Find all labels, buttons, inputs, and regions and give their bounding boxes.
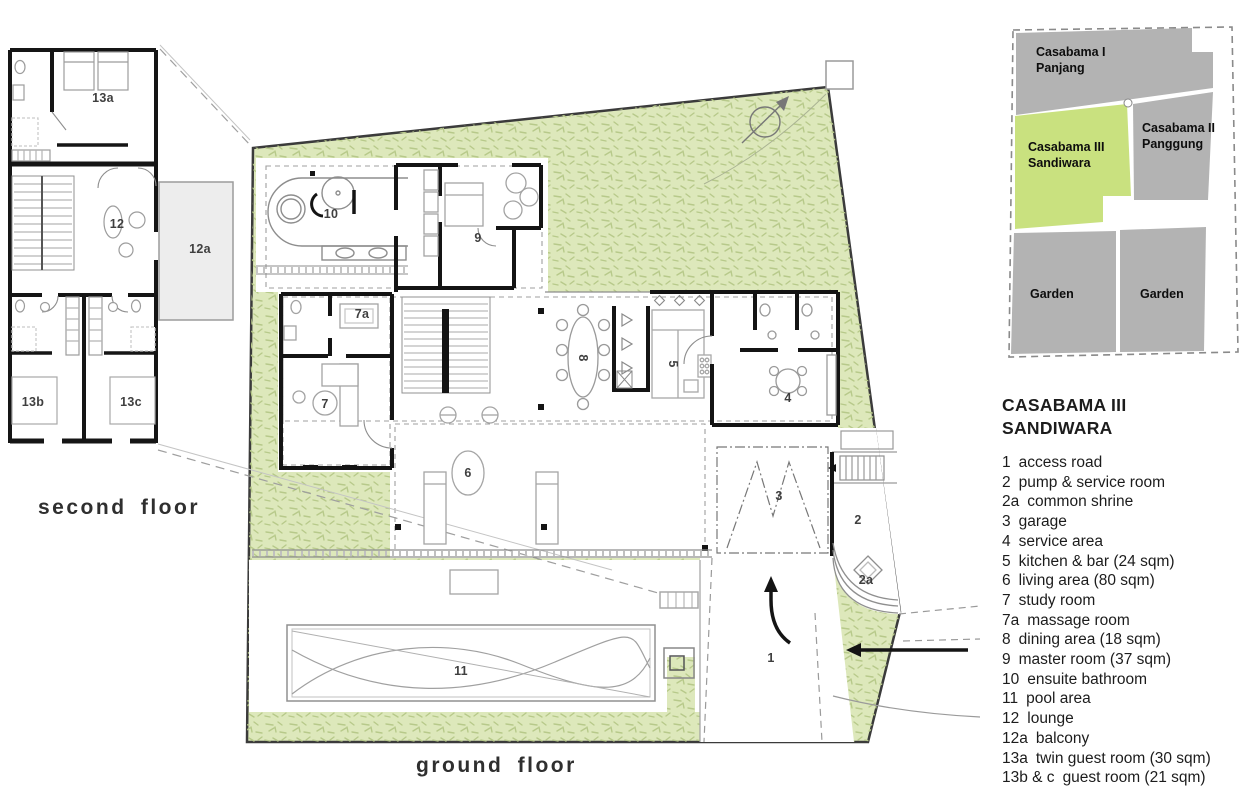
room-label-7: 7 [321, 397, 328, 411]
legend-item: 2pump & service room [1002, 473, 1250, 493]
legend-item: 11pool area [1002, 689, 1250, 709]
site-key-map [1009, 27, 1238, 357]
column [310, 171, 315, 176]
room-label-4: 4 [784, 391, 791, 405]
room-label-5: 5 [666, 360, 680, 367]
room-label-6: 6 [464, 466, 471, 480]
legend: CASABAMA III SANDIWARA 1access road 2pum… [1002, 394, 1250, 788]
legend-item: 4service area [1002, 532, 1250, 552]
ground-floor-caption: ground floor [416, 754, 577, 778]
column [395, 524, 401, 530]
legend-item: 6living area (80 sqm) [1002, 571, 1250, 591]
room-label-12: 12 [110, 217, 125, 231]
column [541, 524, 547, 530]
legend-item: 13atwin guest room (30 sqm) [1002, 749, 1250, 769]
site-map-label-garden-right: Garden [1140, 286, 1184, 302]
legend-title: CASABAMA III SANDIWARA [1002, 394, 1250, 440]
legend-item: 5kitchen & bar (24 sqm) [1002, 552, 1250, 572]
room-label-8: 8 [576, 354, 590, 361]
legend-item: 2acommon shrine [1002, 492, 1250, 512]
room-label-2: 2 [854, 513, 861, 527]
room-label-7a: 7a [355, 307, 370, 321]
room-label-12a: 12a [189, 242, 211, 256]
legend-item: 12lounge [1002, 709, 1250, 729]
column [538, 404, 544, 410]
room-label-13b: 13b [22, 395, 44, 409]
gate-square [826, 61, 853, 89]
legend-items: 1access road 2pump & service room 2acomm… [1002, 453, 1250, 788]
room-label-13c: 13c [120, 395, 142, 409]
legend-item: 10ensuite bathroom [1002, 670, 1250, 690]
second-floor-caption: second floor [38, 496, 200, 520]
site-map-label-casabama-3: Casabama IIISandiwara [1028, 139, 1104, 172]
column [538, 308, 544, 314]
stair-wall [442, 309, 449, 393]
room-label-2a: 2a [859, 573, 874, 587]
room-label-3: 3 [775, 489, 782, 503]
site-map-label-garden-left: Garden [1030, 286, 1074, 302]
room-label-11: 11 [454, 664, 468, 678]
second-floor-stair [12, 176, 74, 270]
room-label-10: 10 [324, 207, 339, 221]
legend-item: 3garage [1002, 512, 1250, 532]
room-label-1: 1 [767, 651, 774, 665]
legend-item: 13b & cguest room (21 sqm) [1002, 768, 1250, 788]
legend-item: 12abalcony [1002, 729, 1250, 749]
ground-floor-plan [158, 45, 980, 742]
legend-item: 7study room [1002, 591, 1250, 611]
room-label-13a: 13a [92, 91, 114, 105]
legend-item: 1access road [1002, 453, 1250, 473]
kitchen [652, 310, 711, 398]
site-map-label-casabama-1: Casabama IPanjang [1036, 44, 1105, 77]
legend-item: 7amassage room [1002, 611, 1250, 631]
site-map-label-casabama-2: Casabama IIPanggung [1142, 120, 1215, 153]
room-label-9: 9 [474, 231, 481, 245]
legend-item: 9master room (37 sqm) [1002, 650, 1250, 670]
legend-item: 8dining area (18 sqm) [1002, 630, 1250, 650]
